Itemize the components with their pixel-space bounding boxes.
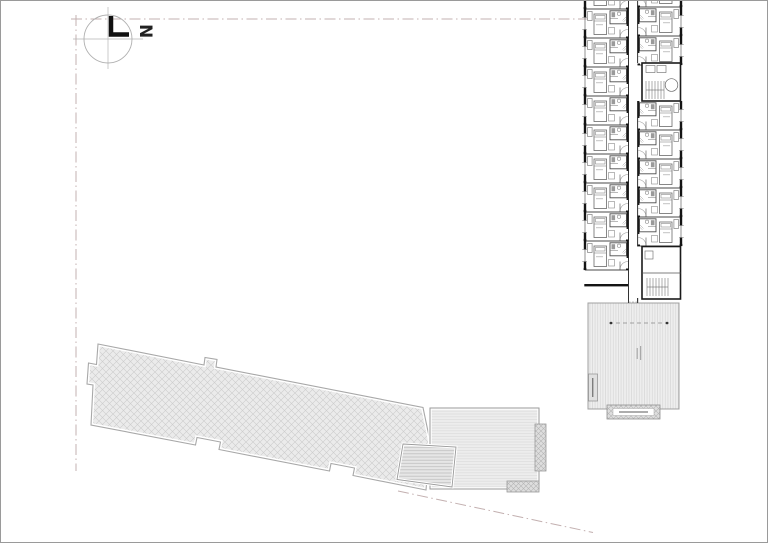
room-unit — [582, 9, 628, 38]
terrace-side-label-mark — [592, 378, 593, 397]
terrace-surface — [588, 303, 679, 409]
room-unit — [582, 154, 628, 183]
canopy-post-dot — [666, 322, 669, 325]
north-arrow: N — [73, 7, 155, 69]
room-unit — [638, 188, 684, 217]
site-plan-sheet: N — [0, 0, 768, 543]
boundary-southeast — [398, 491, 593, 533]
deck-planter-east — [535, 424, 546, 471]
south-terrace — [588, 303, 679, 419]
room-unit — [582, 1, 628, 9]
room-unit — [638, 36, 684, 65]
stair-core-lower — [642, 247, 681, 300]
deck-planter-south — [507, 481, 539, 492]
site-plan-canvas: N — [1, 1, 767, 542]
existing-building-outline — [87, 344, 430, 490]
room-unit — [638, 159, 684, 188]
garden-stairs — [397, 444, 456, 487]
room-unit — [582, 38, 628, 67]
room-unit — [638, 217, 684, 246]
terrace-bottom-label-mark — [619, 411, 648, 412]
room-unit — [582, 212, 628, 241]
room-unit — [638, 1, 684, 7]
room-unit — [638, 130, 684, 159]
rooms-east-wing — [638, 1, 684, 246]
terrace-annotation-mark — [637, 348, 638, 359]
south-wall-west-wing — [584, 284, 629, 286]
room-unit — [582, 241, 628, 270]
room-unit — [582, 67, 628, 96]
room-unit — [582, 183, 628, 212]
room-unit — [638, 7, 684, 36]
existing-building-roof — [87, 344, 430, 490]
room-unit — [638, 101, 684, 130]
terrace-annotation-mark — [640, 346, 641, 360]
stair-core-upper — [642, 63, 681, 101]
main-building-plan — [582, 1, 684, 303]
rooms-west-wing — [582, 1, 628, 270]
canopy-post-dot — [610, 322, 613, 325]
entrance-passage — [629, 284, 638, 303]
room-unit — [582, 96, 628, 125]
room-unit — [582, 125, 628, 154]
north-label: N — [135, 24, 155, 38]
